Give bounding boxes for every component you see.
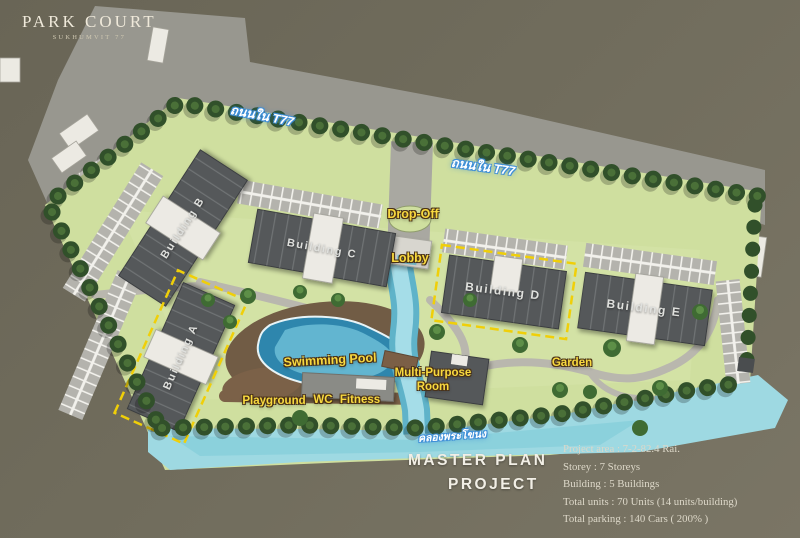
master-plan-page: PARK COURT SUKHUMVIT 77 ถนนใน T77 ถนนใน …	[0, 0, 800, 538]
logo-title: PARK COURT	[22, 12, 157, 32]
label-playground: Playground	[242, 395, 305, 407]
label-garden: Garden	[552, 357, 592, 369]
logo-subtitle: SUKHUMVIT 77	[22, 34, 157, 41]
detail-building: Building : 5 Buildings	[563, 476, 798, 494]
detail-total-units: Total units : 70 Units (14 units/buildin…	[563, 494, 798, 512]
label-drop-off: Drop-Off	[387, 207, 438, 221]
logo: PARK COURT SUKHUMVIT 77	[22, 12, 157, 41]
detail-total-parking: Total parking : 140 Cars ( 200% )	[563, 511, 798, 529]
label-multi-purpose-room: Multi-Purpose Room	[395, 366, 472, 394]
detail-project-area: Project area : 7-2-82.4 Rai.	[563, 441, 798, 459]
label-wc: WC	[313, 394, 332, 406]
project-details: Project area : 7-2-82.4 Rai. Storey : 7 …	[563, 441, 798, 529]
label-fitness: Fitness	[340, 394, 380, 406]
footer-title-line1: MASTER PLAN	[408, 452, 547, 470]
label-lobby: Lobby	[391, 251, 429, 265]
footer-title-line2: PROJECT	[448, 476, 539, 494]
detail-storey: Storey : 7 Storeys	[563, 459, 798, 477]
